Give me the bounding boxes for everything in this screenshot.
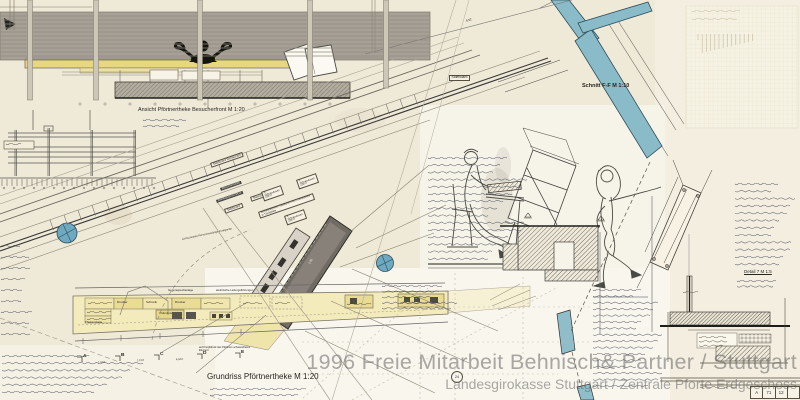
label-leitungen: elektrische Leitungsführungen xyxy=(216,289,253,292)
label-thekenplatte: Thekenplatte xyxy=(85,321,102,324)
ansicht-title: Ansicht Pförtnertheke Besucherfront M 1:… xyxy=(138,108,245,114)
dim-seg2: 1.12½ xyxy=(137,360,144,363)
label-sideboard-top: Sideboard xyxy=(449,75,470,81)
label-gegensprechanlage: Gegensprechanlage xyxy=(168,289,193,292)
cell-monitore: 4 Monitore xyxy=(159,312,172,315)
schnitt-title: Schnitt F-F M 1:10 xyxy=(582,84,629,90)
watermark-line1: 1996 Freie Mitarbeit Behnisch& Partner /… xyxy=(306,350,797,375)
architectural-drawing-sheet: Ansicht Pförtnertheke Besucherfront M 1:… xyxy=(0,0,800,400)
section-marker-c: C xyxy=(160,352,163,357)
dim-seg3: 4.52½ xyxy=(176,359,183,362)
detail7-title: Detail 7 M 1:5 xyxy=(744,270,772,275)
section-marker-e: E xyxy=(241,350,244,355)
section-marker-b: B xyxy=(121,353,124,358)
cell-drucker1: Drucker xyxy=(117,301,128,304)
section-marker-d: D xyxy=(203,351,206,356)
label-knopfdruck: auf Knopfdruck des Pförtners schwenkbare… xyxy=(199,347,257,352)
cell-drucker2: Drucker xyxy=(175,301,186,304)
grundriss-title: Grundriss Pförtnertheke M 1:20 xyxy=(207,373,319,381)
watermark-line2: Landesgirokasse Stuttgart / Zentrale Pfo… xyxy=(445,376,797,392)
cell-schrank: Schrank xyxy=(146,301,157,304)
drawing-linework xyxy=(0,0,800,400)
section-marker-a: A xyxy=(83,354,86,359)
dim-seg1: 1.52½ xyxy=(98,362,105,365)
